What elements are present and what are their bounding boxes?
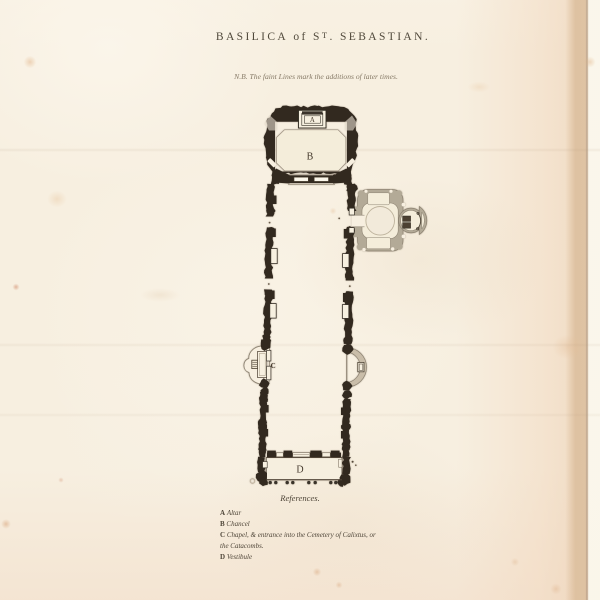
svg-text:A: A [310,117,315,124]
svg-text:C: C [271,362,276,370]
svg-text:B: B [307,152,314,163]
svg-text:D: D [296,464,303,475]
